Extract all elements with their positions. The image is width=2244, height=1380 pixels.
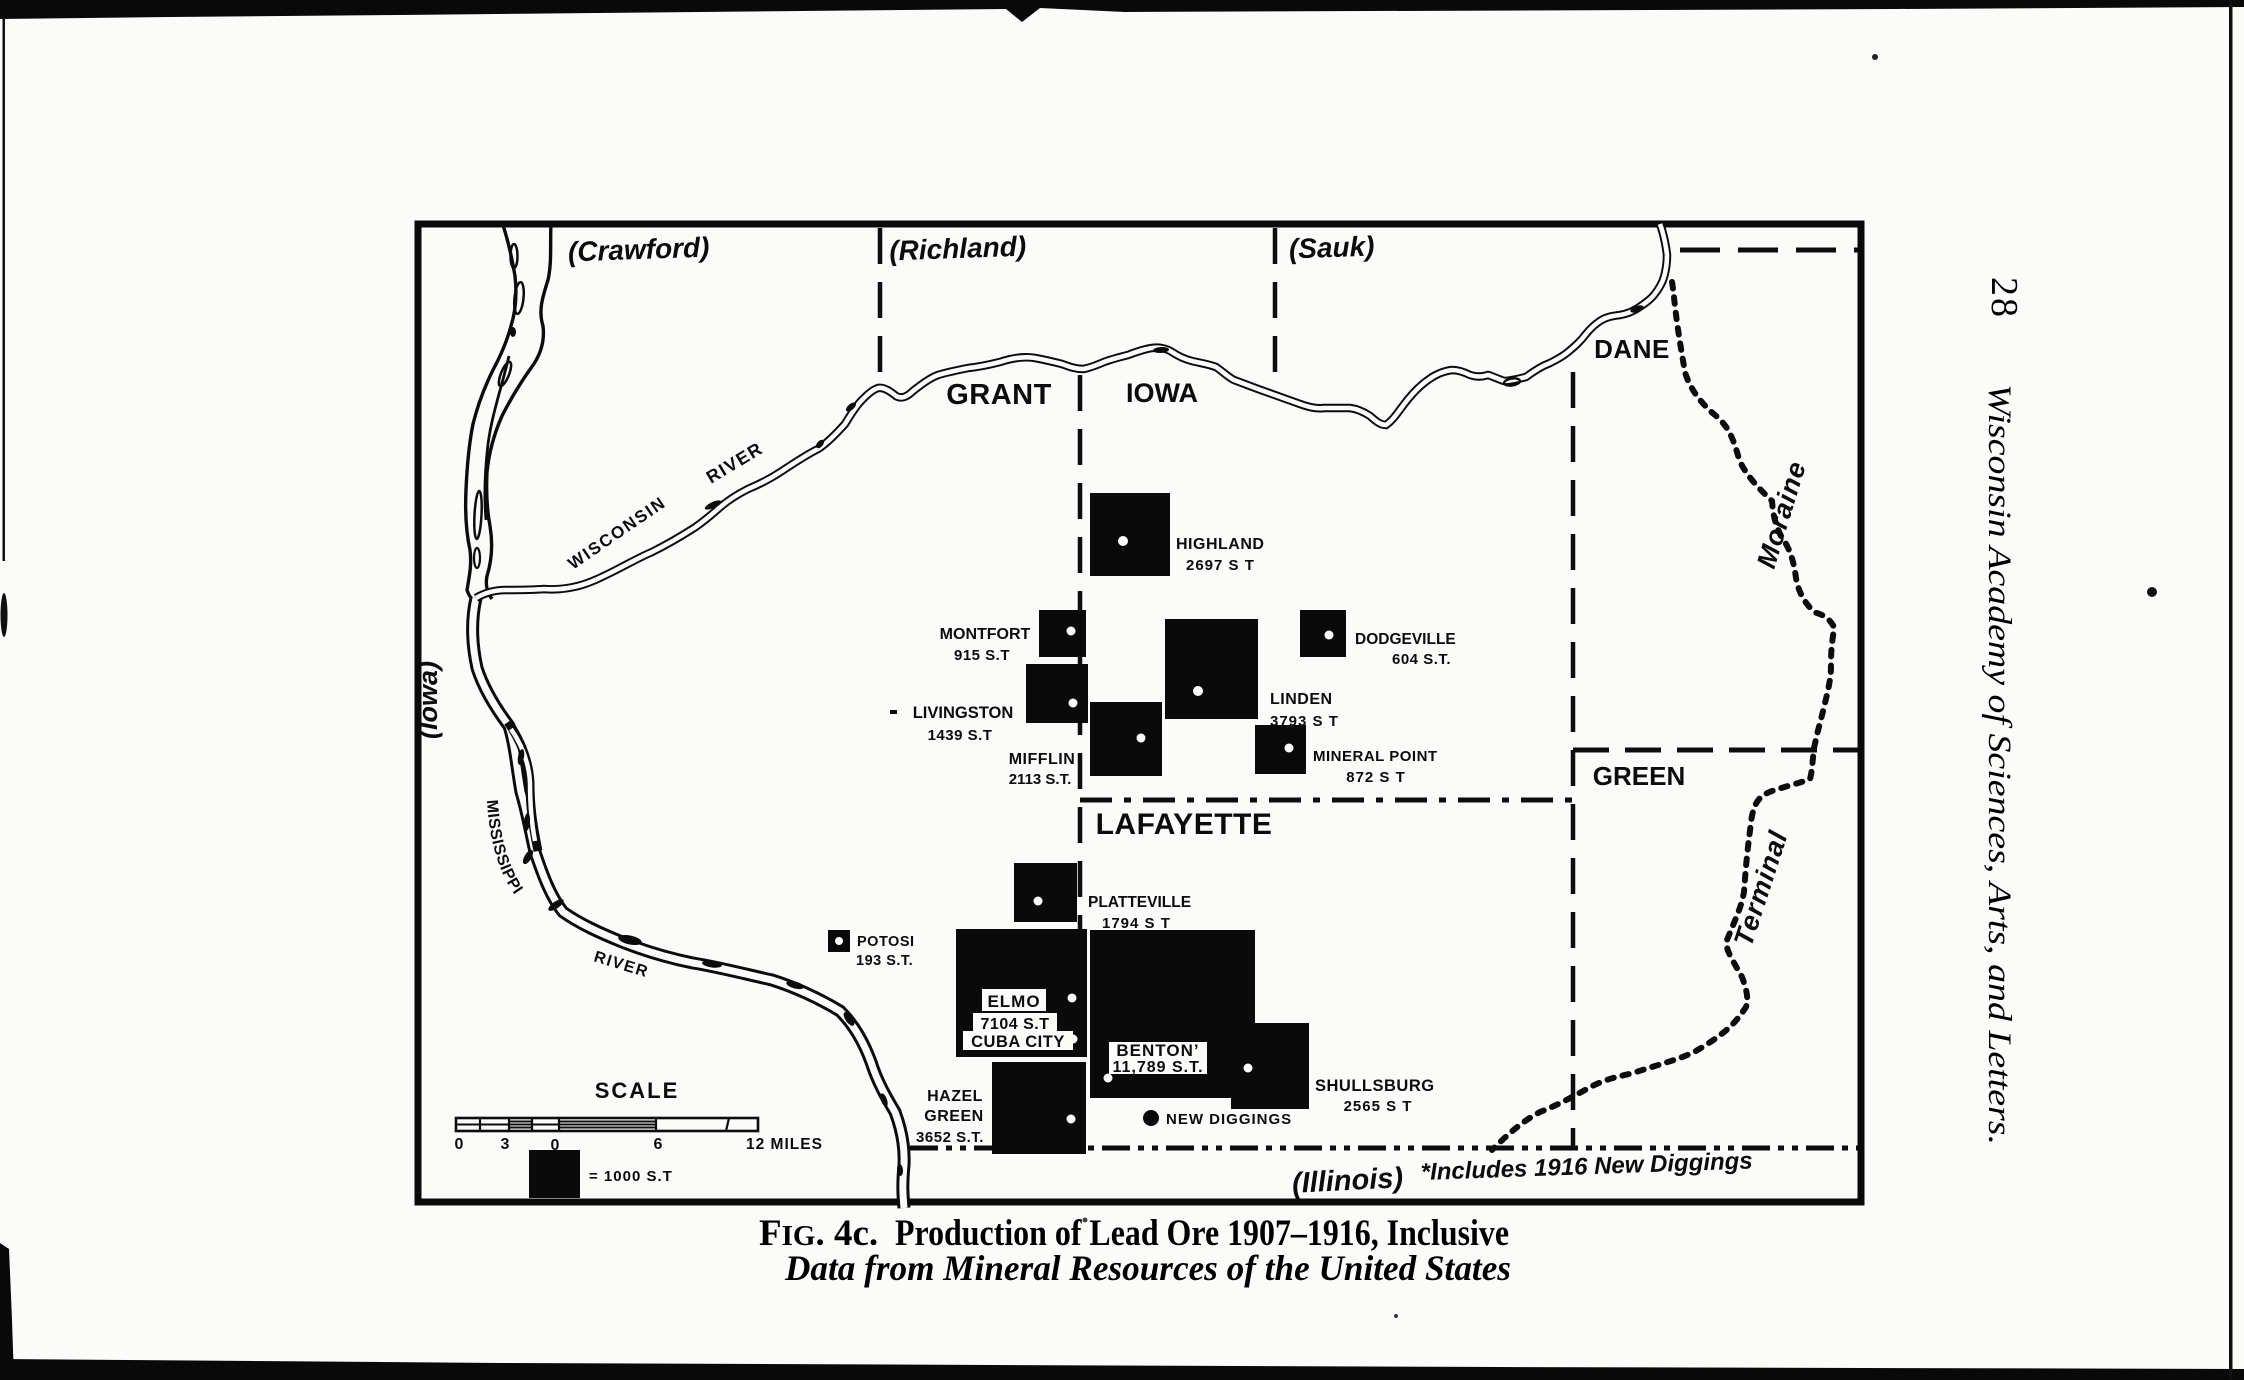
svg-text:DANE: DANE	[1594, 334, 1670, 364]
svg-text:(Sauk): (Sauk)	[1288, 231, 1375, 265]
svg-text:2113 S.T.: 2113 S.T.	[1009, 771, 1072, 788]
svg-text:NEW DIGGINGS: NEW DIGGINGS	[1166, 1111, 1292, 1128]
svg-text:POTOSI: POTOSI	[857, 934, 915, 950]
svg-text:3: 3	[501, 1136, 510, 1153]
svg-text:604 S.T.: 604 S.T.	[1392, 651, 1451, 668]
svg-text:PLATTEVILLE: PLATTEVILLE	[1088, 894, 1191, 911]
svg-text:2565 S T: 2565 S T	[1344, 1098, 1413, 1115]
svg-text:HAZEL: HAZEL	[927, 1088, 983, 1105]
svg-text:MONTFORT: MONTFORT	[940, 626, 1031, 643]
svg-text:193 S.T.: 193 S.T.	[856, 953, 913, 969]
svg-text:GREEN: GREEN	[924, 1108, 983, 1125]
svg-text:872 S T: 872 S T	[1346, 769, 1406, 786]
svg-text:Wisconsin Academy of Sciences,: Wisconsin Academy of Sciences, Arts, and…	[1981, 384, 2017, 1145]
svg-text:(Iowa): (Iowa)	[413, 661, 443, 739]
svg-text:2697 S T: 2697 S T	[1186, 557, 1255, 574]
svg-text:1794 S T: 1794 S T	[1102, 915, 1171, 932]
svg-text:HIGHLAND: HIGHLAND	[1176, 536, 1264, 553]
svg-text:6: 6	[654, 1136, 663, 1153]
svg-text:11,789 S.T.: 11,789 S.T.	[1112, 1059, 1203, 1076]
svg-text:28: 28	[1983, 277, 2025, 319]
svg-text:GRANT: GRANT	[946, 379, 1052, 411]
svg-text:LINDEN: LINDEN	[1270, 691, 1333, 708]
svg-text:915 S.T: 915 S.T	[954, 647, 1010, 664]
svg-text:3652 S.T.: 3652 S.T.	[916, 1129, 984, 1146]
svg-text:GREEN: GREEN	[1593, 761, 1685, 791]
svg-text:= 1000 S.T: = 1000 S.T	[589, 1168, 673, 1185]
svg-text:MINERAL POINT: MINERAL POINT	[1313, 748, 1438, 765]
svg-text:IOWA: IOWA	[1126, 378, 1198, 408]
svg-text:BENTON’: BENTON’	[1116, 1041, 1199, 1060]
svg-text:7104 S.T: 7104 S.T	[981, 1016, 1050, 1033]
svg-text:ELMO: ELMO	[987, 992, 1040, 1011]
svg-text:(Crawford): (Crawford)	[567, 232, 710, 268]
svg-text:DODGEVILLE: DODGEVILLE	[1355, 631, 1456, 648]
svg-text:(Illinois): (Illinois)	[1291, 1162, 1404, 1200]
svg-text:(Richland): (Richland)	[889, 231, 1027, 267]
svg-text:MIFFLIN: MIFFLIN	[1009, 751, 1076, 768]
svg-text:CUBA CITY: CUBA CITY	[971, 1033, 1065, 1051]
svg-text:Data from Mineral Resources of: Data from Mineral Resources of the Unite…	[784, 1248, 1511, 1288]
svg-text:SHULLSBURG: SHULLSBURG	[1315, 1077, 1435, 1095]
svg-text:SCALE: SCALE	[595, 1078, 680, 1103]
svg-text:12 MILES: 12 MILES	[746, 1136, 823, 1153]
svg-text:LAFAYETTE: LAFAYETTE	[1096, 808, 1273, 841]
svg-text:LIVINGSTON: LIVINGSTON	[913, 704, 1014, 722]
svg-text:1439 S.T: 1439 S.T	[928, 727, 993, 744]
svg-text:0: 0	[455, 1136, 464, 1153]
